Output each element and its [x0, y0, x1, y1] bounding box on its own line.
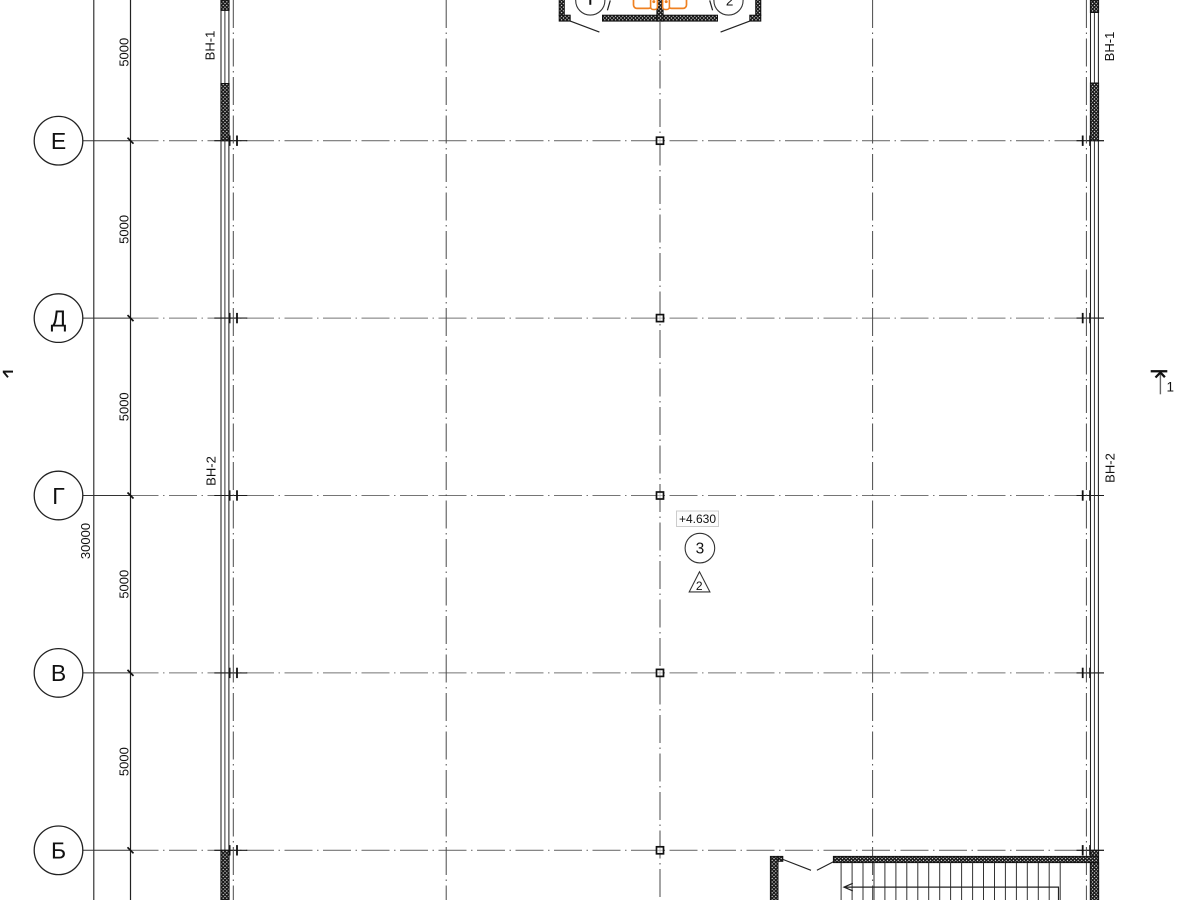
svg-text:5000: 5000	[117, 747, 132, 776]
svg-text:ВН-2: ВН-2	[1103, 453, 1118, 483]
svg-text:ВН-2: ВН-2	[204, 456, 219, 486]
svg-text:30000: 30000	[78, 523, 93, 559]
svg-text:Д: Д	[51, 305, 67, 331]
svg-text:ВН-1: ВН-1	[1102, 32, 1117, 62]
svg-text:3: 3	[696, 541, 705, 558]
svg-text:+4.630: +4.630	[679, 512, 716, 526]
svg-text:2: 2	[726, 0, 734, 9]
svg-text:Б: Б	[51, 838, 66, 864]
svg-text:5000: 5000	[117, 570, 132, 599]
svg-text:2: 2	[696, 579, 703, 593]
svg-text:Г: Г	[52, 483, 65, 509]
svg-text:Е: Е	[51, 128, 66, 154]
svg-text:5000: 5000	[117, 215, 132, 244]
svg-text:5000: 5000	[117, 392, 132, 421]
svg-text:1: 1	[1167, 380, 1175, 395]
svg-text:В: В	[51, 660, 66, 686]
svg-text:5000: 5000	[117, 38, 132, 67]
svg-text:ВН-1: ВН-1	[203, 31, 218, 61]
